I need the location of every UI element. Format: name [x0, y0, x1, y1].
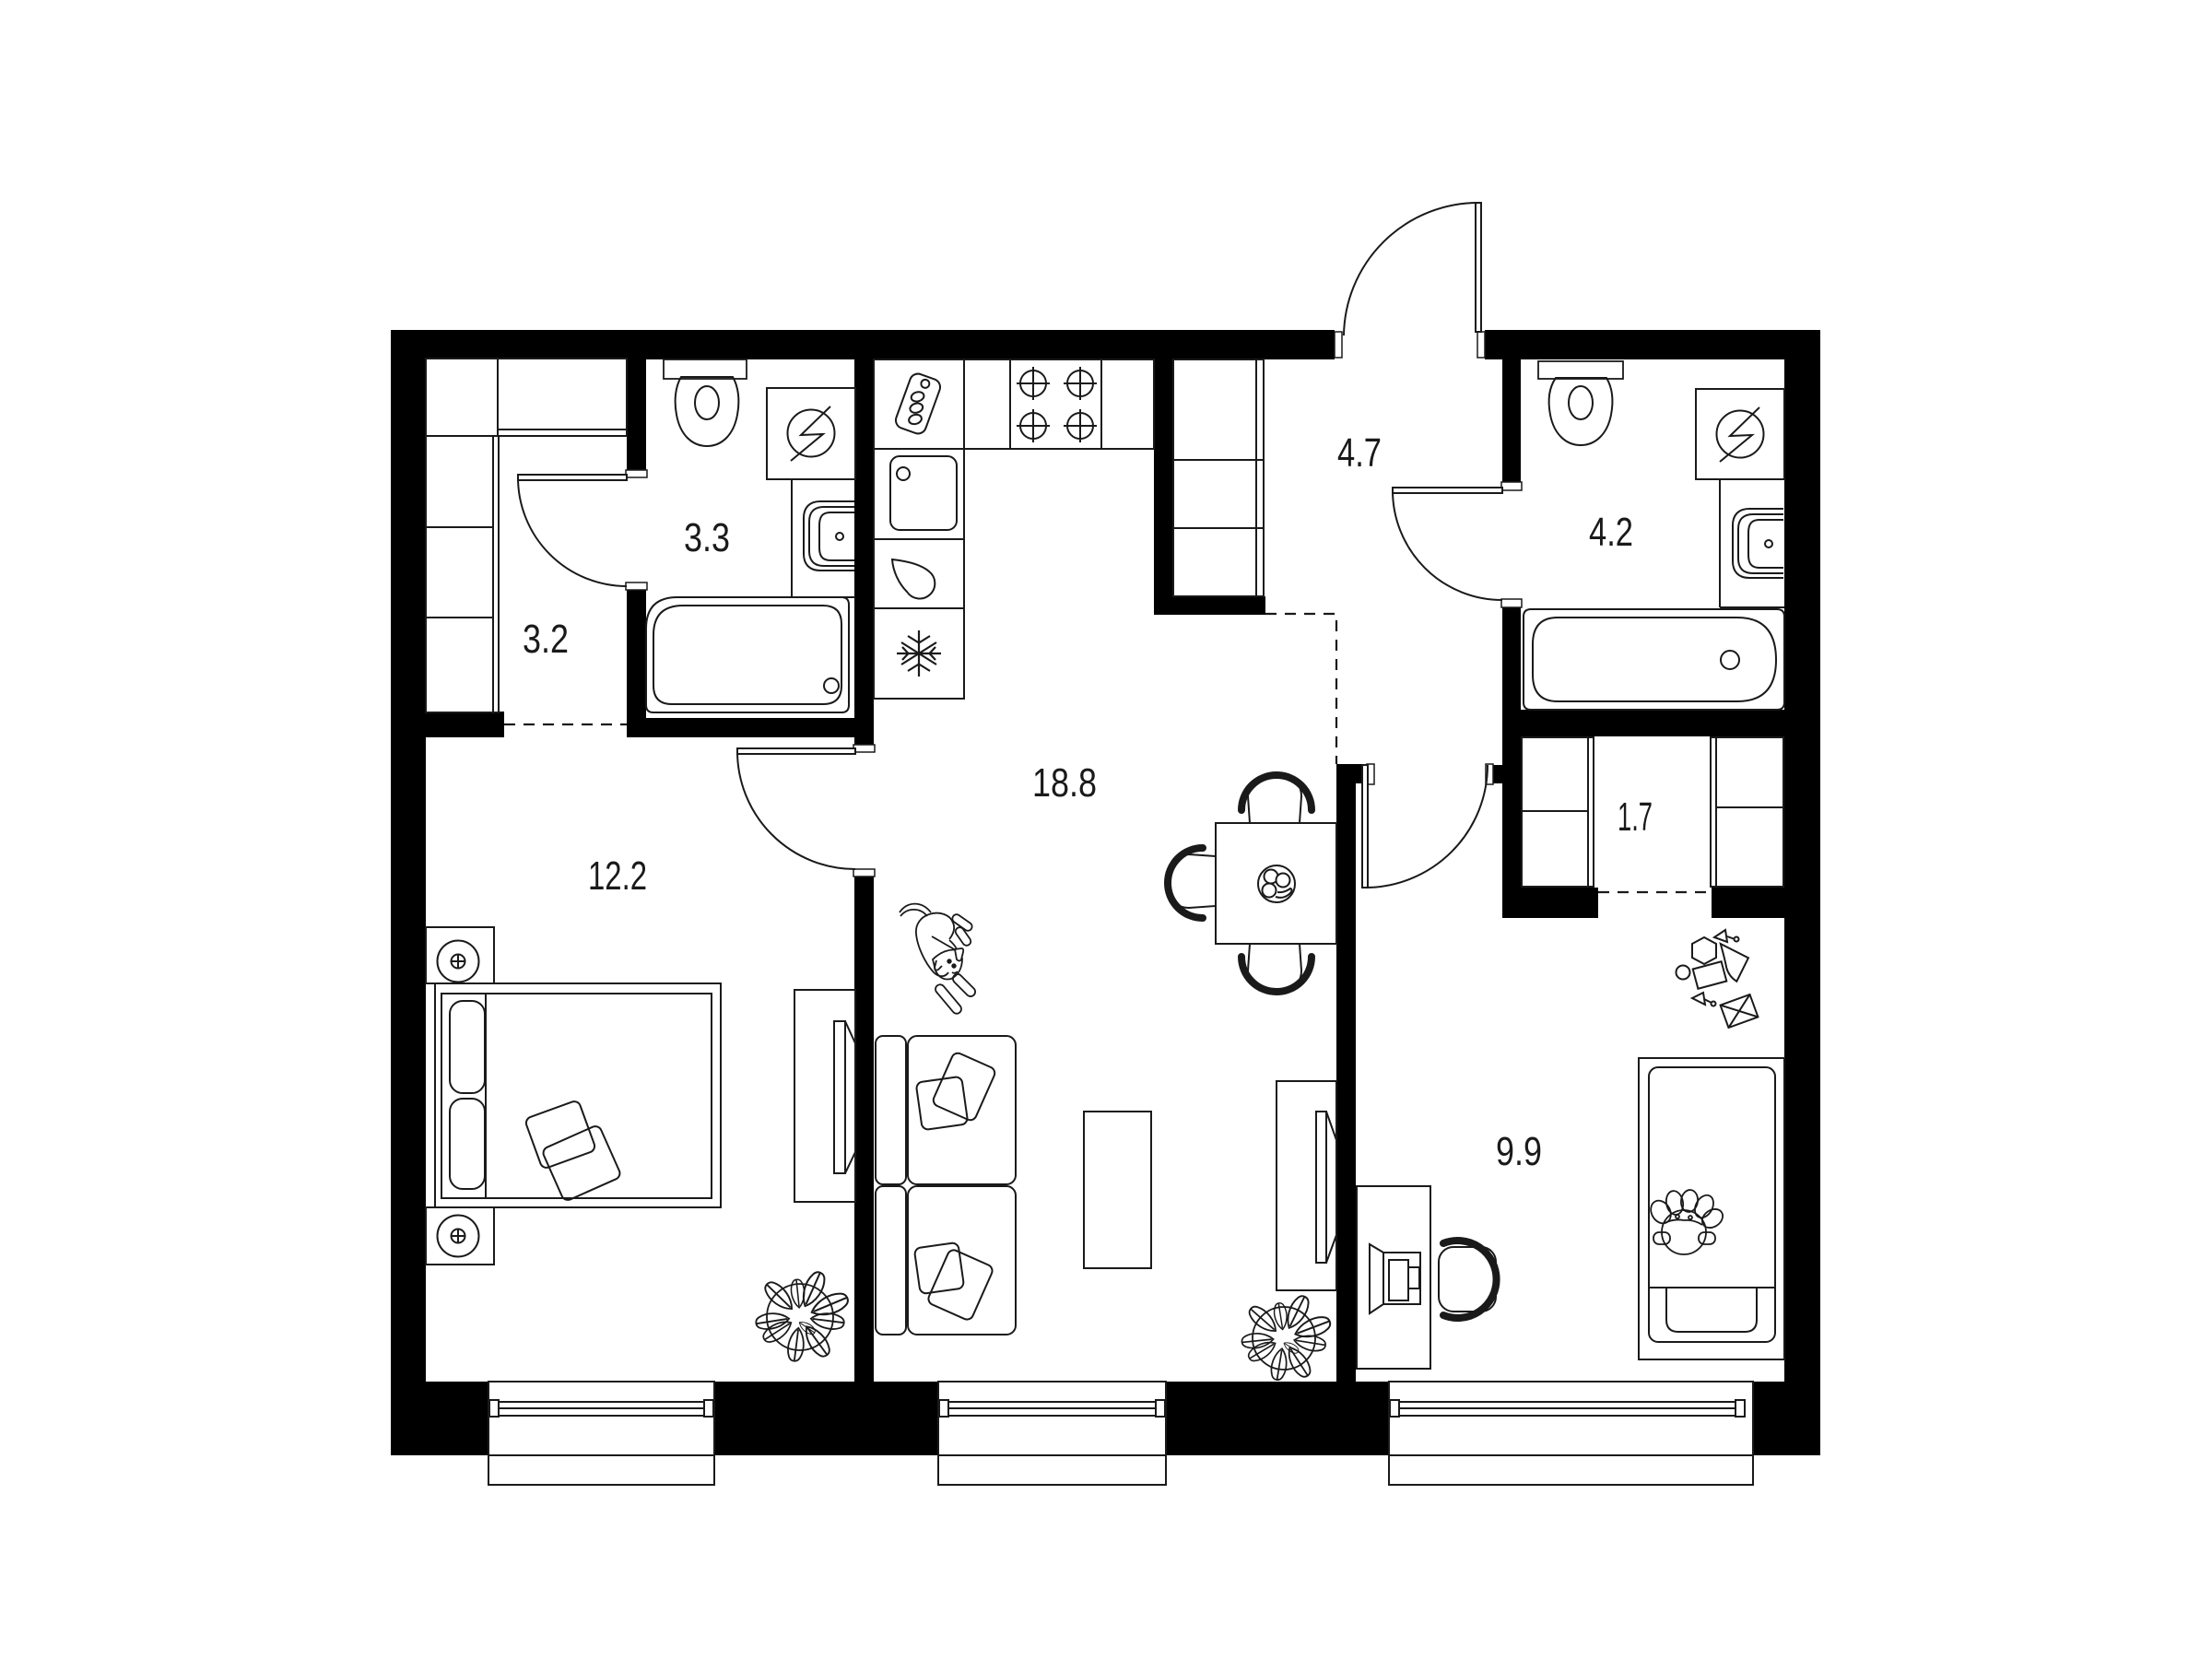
svg-text:4.7: 4.7 — [1337, 430, 1382, 476]
svg-text:3.2: 3.2 — [523, 617, 569, 662]
svg-text:9.9: 9.9 — [1496, 1129, 1542, 1174]
svg-text:4.2: 4.2 — [1589, 510, 1633, 555]
svg-text:18.8: 18.8 — [1032, 760, 1097, 806]
svg-text:12.2: 12.2 — [588, 853, 647, 899]
svg-text:3.3: 3.3 — [684, 515, 730, 560]
svg-text:1.7: 1.7 — [1618, 794, 1653, 840]
